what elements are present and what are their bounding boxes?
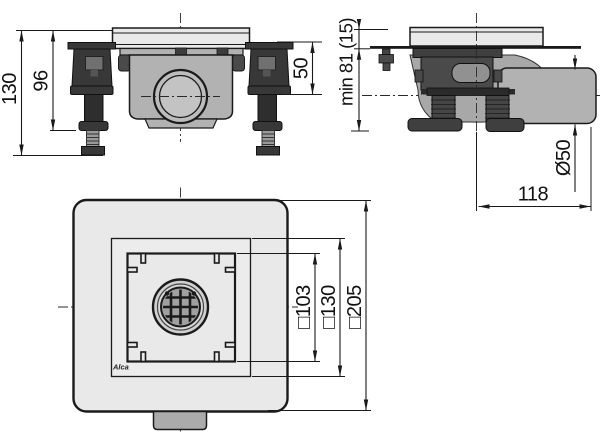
dim-outlet-length-label: 118 <box>518 184 549 206</box>
dim-min-depth-label: min 81 (15) <box>336 18 357 106</box>
foot-base-left <box>82 147 105 156</box>
technical-drawing-floor-drain: 130 96 50 <box>0 0 600 435</box>
drawing-canvas: 130 96 50 <box>0 0 600 435</box>
foot-disc-right <box>253 122 282 131</box>
top-view: Alca □103 □130 □205 <box>58 188 371 434</box>
front-side-view: 130 96 50 <box>0 13 322 156</box>
drain-sump-body <box>130 55 233 128</box>
dim-adjust-range-label: 50 <box>291 58 313 80</box>
flange-bolt <box>379 49 394 71</box>
outlet-stub <box>154 412 207 430</box>
clip-hook-left <box>119 55 131 71</box>
dim-grate-size-label: □103 <box>293 285 315 329</box>
grate-screw-right <box>192 291 196 295</box>
foot-disc-left <box>79 122 108 131</box>
outlet-side-view: min 81 (15) Ø50 118 <box>336 13 600 211</box>
dim-frame-size-label: □130 <box>318 285 340 329</box>
clamp-bar <box>427 88 509 96</box>
dim-leg-height-label: 96 <box>31 70 53 92</box>
adjustable-leg-right <box>246 43 294 156</box>
clip-hook-right <box>233 55 245 71</box>
foot-plate-left <box>408 119 462 132</box>
grate-screw-left <box>165 291 169 295</box>
outlet-pipe <box>498 68 596 124</box>
adjustable-leg-left <box>68 43 116 156</box>
dim-total-height-label: 130 <box>0 73 21 105</box>
drain-grate <box>153 280 208 335</box>
alca-brand-logo: Alca <box>112 363 129 372</box>
mechanism-opening <box>452 64 490 83</box>
foot-base-right <box>257 147 280 156</box>
drain-top-plate <box>113 28 250 49</box>
dim-min-depth: min 81 (15) <box>336 18 389 131</box>
foot-plate-right <box>486 119 524 132</box>
dim-pipe-diameter-label: Ø50 <box>553 139 575 176</box>
dim-plate-size-label: □205 <box>344 285 366 329</box>
